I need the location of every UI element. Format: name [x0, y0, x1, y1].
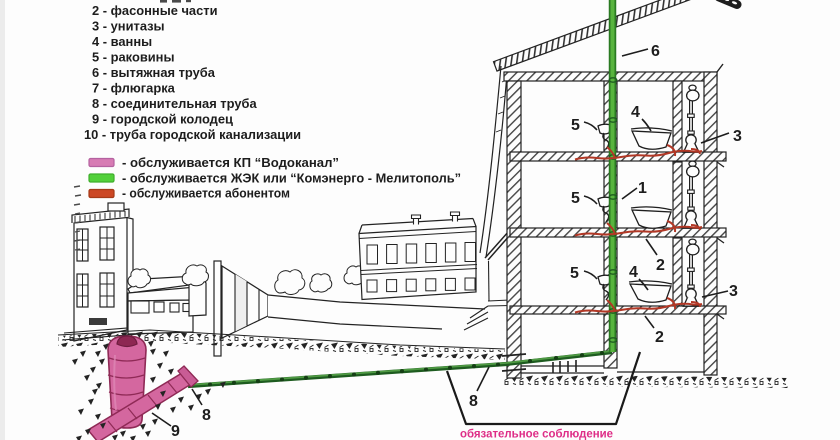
svg-text:- обслуживается КП “Водоканал”: - обслуживается КП “Водоканал”	[122, 155, 339, 170]
svg-text:6 - вытяжная труба: 6 - вытяжная труба	[92, 65, 216, 80]
svg-text:7 - флюгарка: 7 - флюгарка	[92, 81, 176, 96]
svg-text:2: 2	[655, 329, 664, 346]
svg-text:обязательное соблюдение: обязательное соблюдение	[460, 427, 613, 440]
svg-text:3: 3	[729, 283, 738, 300]
svg-text:1: 1	[638, 180, 647, 197]
svg-text:5: 5	[571, 117, 580, 134]
svg-text:4 - ванны: 4 - ванны	[92, 34, 152, 49]
svg-text:3: 3	[733, 128, 742, 145]
svg-text:4: 4	[629, 264, 638, 281]
svg-text:6: 6	[651, 43, 660, 60]
svg-text:5: 5	[570, 265, 579, 282]
svg-text:5 - раковины: 5 - раковины	[92, 50, 174, 65]
svg-text:5: 5	[571, 190, 580, 207]
svg-text:9 - городской колодец: 9 - городской колодец	[92, 112, 233, 127]
svg-text:2 - фасонные части: 2 - фасонные части	[92, 3, 218, 18]
svg-text:10 - труба городской канализац: 10 - труба городской канализации	[84, 127, 301, 142]
svg-text:8: 8	[469, 393, 478, 410]
svg-text:- обслуживается ЖЭК или “Комэн: - обслуживается ЖЭК или “Комэнерго - Мел…	[122, 171, 461, 186]
svg-text:8 - соединительная труба: 8 - соединительная труба	[92, 96, 257, 111]
svg-text:9: 9	[171, 423, 180, 440]
svg-text:2: 2	[656, 257, 665, 274]
svg-text:3 - унитазы: 3 - унитазы	[92, 19, 165, 34]
svg-text:- обслуживается абонентом: - обслуживается абонентом	[122, 186, 290, 201]
svg-text:4: 4	[631, 104, 640, 121]
svg-text:8: 8	[202, 407, 211, 424]
